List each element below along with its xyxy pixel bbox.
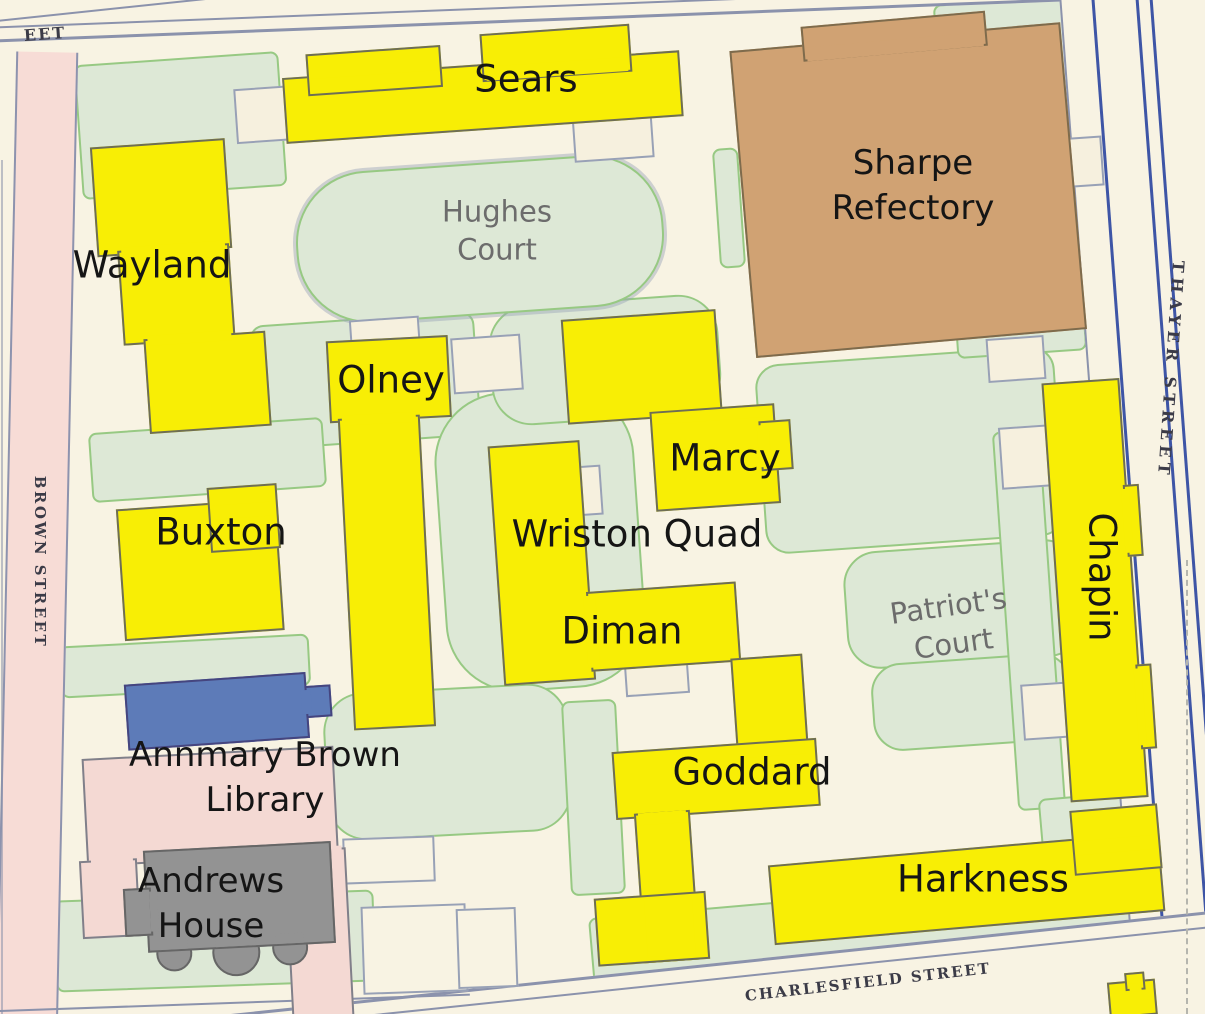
label-sears[interactable]: Sears — [474, 56, 577, 105]
label-olney[interactable]: Olney — [337, 357, 445, 406]
label-sharpe-refectory[interactable]: Sharpe Refectory — [832, 141, 995, 231]
label-wriston-quad[interactable]: Wriston Quad — [512, 511, 763, 560]
building-part — [338, 415, 436, 731]
label-chapin[interactable]: Chapin — [1077, 512, 1126, 641]
label-harkness[interactable]: Harkness — [897, 856, 1069, 905]
street-line — [1, 160, 3, 1014]
label-line: Andrews — [138, 859, 284, 904]
building-part — [1129, 983, 1142, 992]
label-line: Annmary Brown — [129, 733, 401, 778]
label-line: Court — [442, 231, 552, 269]
label-line: House — [138, 904, 284, 949]
outbuilding — [342, 835, 436, 884]
building-part — [561, 309, 723, 425]
label-goddard[interactable]: Goddard — [672, 749, 831, 798]
map-fold-dashed-line — [1186, 560, 1189, 1014]
outbuilding — [456, 907, 519, 989]
outbuilding — [450, 334, 524, 395]
building-part — [143, 331, 271, 434]
building-buxton[interactable] — [115, 482, 305, 649]
label-line: Refectory — [832, 186, 995, 231]
label-line: Library — [129, 778, 401, 823]
label-annmary-brown-library[interactable]: Annmary Brown Library — [129, 733, 401, 823]
label-marcy[interactable]: Marcy — [669, 435, 780, 484]
label-buxton[interactable]: Buxton — [155, 509, 286, 558]
label-andrews-house[interactable]: Andrews House — [138, 859, 284, 949]
label-diman[interactable]: Diman — [562, 608, 683, 657]
building-part — [90, 138, 232, 257]
building-part — [644, 896, 696, 957]
building-part — [301, 690, 313, 715]
label-brown-street: BROWN STREET — [31, 476, 49, 648]
building-part — [730, 654, 808, 751]
label-line: Hughes — [442, 193, 552, 231]
label-wayland[interactable]: Wayland — [73, 242, 232, 291]
label-patriots-court: Patriot's Court — [887, 579, 1014, 671]
label-line: Sharpe — [832, 141, 995, 186]
outbuilding — [360, 903, 468, 995]
building-fragment[interactable] — [1106, 969, 1172, 1014]
label-hughes-court: Hughes Court — [442, 193, 552, 270]
campus-map: Sears Wayland Olney Buxton Marcy Wriston… — [0, 0, 1205, 1014]
label-top-street-partial: EET — [23, 23, 67, 45]
